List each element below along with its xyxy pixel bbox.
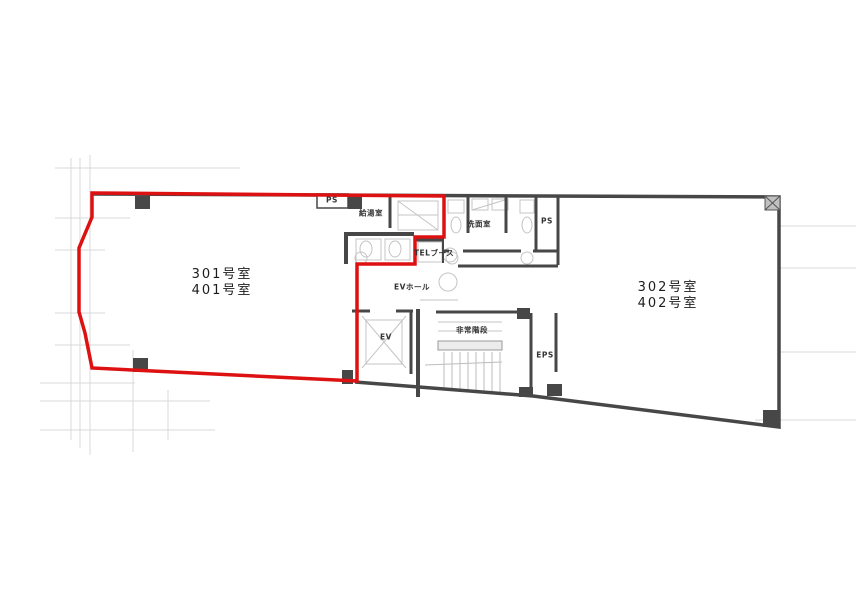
floor-plan: 301号室 401号室 302号室 402号室 PS 給湯室 TELブース 洗面… xyxy=(0,0,868,612)
hatched-column xyxy=(765,196,780,210)
stair-treads xyxy=(425,341,502,393)
stairs-label: 非常階段 xyxy=(456,327,488,336)
floor-plan-drawing xyxy=(0,0,868,612)
ps-right-label: PS xyxy=(541,218,553,227)
washroom-label: 洗面室 xyxy=(467,221,491,230)
elevator-label: EV xyxy=(380,334,392,343)
room-301-line: 301号室 xyxy=(192,267,253,283)
kitchenette-label: 給湯室 xyxy=(359,210,383,219)
room-302-402-label: 302号室 402号室 xyxy=(638,280,699,313)
eps-label: EPS xyxy=(536,352,554,361)
room-301-401-label: 301号室 401号室 xyxy=(192,267,253,300)
ev-hall-label: EVホール xyxy=(394,284,430,293)
room-401-line: 401号室 xyxy=(192,283,253,299)
tel-booth-label: TELブース xyxy=(414,250,454,259)
room-402-line: 402号室 xyxy=(638,296,699,312)
room-302-line: 302号室 xyxy=(638,280,699,296)
ps-top-label: PS xyxy=(326,197,338,206)
